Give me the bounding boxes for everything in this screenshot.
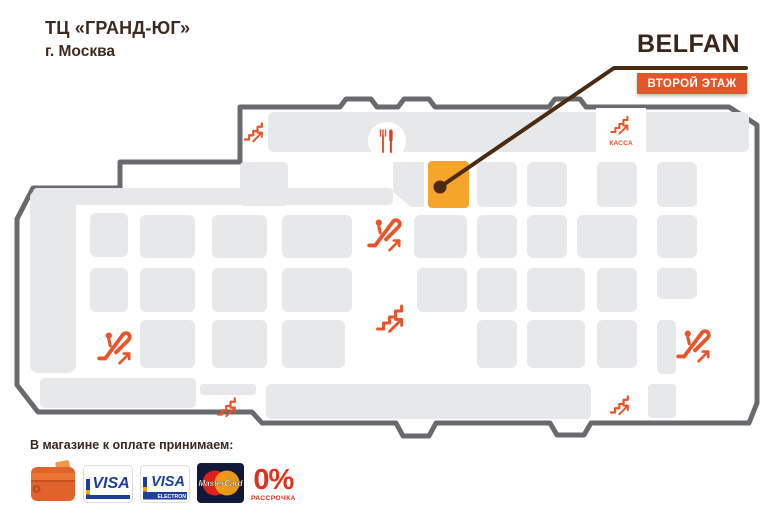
food-court-circle — [368, 122, 406, 160]
cashier-label: КАССА — [609, 140, 633, 147]
store-tile — [212, 215, 267, 258]
store-tile — [140, 215, 195, 258]
store-tile — [90, 213, 128, 257]
visa-electron-text: VISA — [151, 474, 185, 490]
store-tile — [240, 162, 288, 206]
store-tile — [200, 384, 256, 395]
store-tile — [282, 215, 352, 258]
mastercard-text: MasterCard — [198, 479, 243, 488]
mastercard-logo: MasterCard — [197, 463, 244, 503]
store-tile — [648, 384, 676, 418]
store-tile — [527, 320, 585, 368]
store-tile — [90, 268, 128, 312]
store-tile — [527, 215, 567, 258]
store-tile — [417, 268, 467, 312]
store-tile — [282, 320, 345, 368]
store-tile — [527, 268, 585, 312]
store-tile — [140, 268, 195, 312]
payments-label: В магазине к оплате принимаем: — [30, 438, 296, 452]
electron-subtext: ELECTRON — [157, 494, 186, 500]
store-tile — [268, 112, 749, 152]
store-tile — [477, 215, 517, 258]
mall-title: ТЦ «ГРАНД-ЮГ» — [45, 18, 190, 39]
store-tile — [212, 268, 267, 312]
store-tile — [597, 162, 637, 207]
store-tile — [414, 215, 467, 258]
store-tile — [597, 268, 637, 312]
store-tile — [212, 320, 267, 368]
store-tile — [266, 384, 591, 419]
visa-text: VISA — [92, 475, 129, 492]
visa-electron-logo: VISA ELECTRON — [140, 465, 190, 503]
mall-city: г. Москва — [45, 43, 190, 61]
page: КАССА ТЦ «ГРАНД-ЮГ» г. Москва BELFAN ВТО… — [0, 0, 779, 525]
store-tile — [657, 268, 697, 299]
installment-badge: 0% РАССРОЧКА — [251, 466, 296, 503]
store-tile — [282, 268, 352, 312]
store-tile — [30, 190, 76, 373]
store-tile — [527, 162, 567, 207]
installment-subtext: РАССРОЧКА — [251, 496, 296, 503]
store-tile — [477, 162, 517, 207]
visa-logo: VISA — [83, 465, 133, 503]
payments-row: VISA VISA ELECTRON MasterCard 0% РАССРОЧ… — [30, 459, 296, 503]
brand-block: BELFAN — [626, 30, 751, 59]
store-tile — [657, 215, 697, 258]
belfan-logo: BELFAN — [626, 30, 751, 59]
store-tile — [597, 320, 637, 368]
store-tile — [657, 162, 697, 207]
store-location-dot — [434, 181, 447, 194]
store-tile — [33, 188, 393, 205]
store-tile — [577, 215, 637, 258]
installment-percent: 0% — [253, 466, 293, 495]
floor-badge: ВТОРОЙ ЭТАЖ — [637, 73, 747, 94]
header: ТЦ «ГРАНД-ЮГ» г. Москва — [45, 18, 190, 61]
payments-section: В магазине к оплате принимаем: VISA — [30, 438, 296, 503]
store-tile — [657, 320, 676, 374]
store-tile — [477, 320, 517, 368]
store-tile — [140, 320, 195, 368]
wallet-icon — [30, 459, 76, 503]
store-tile — [40, 378, 196, 408]
store-tile — [477, 268, 517, 312]
